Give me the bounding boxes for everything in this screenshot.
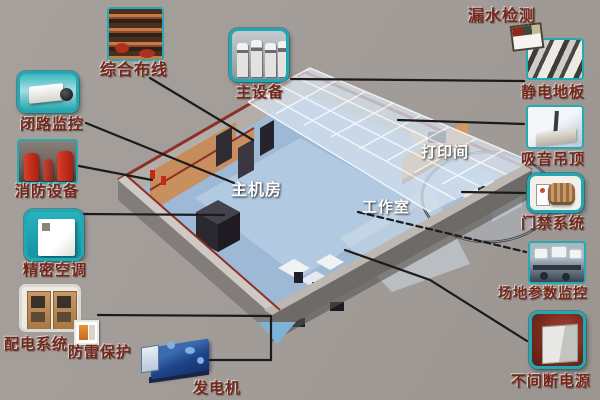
- ac-unit-icon: [38, 219, 75, 256]
- fire-extinguisher-icon: [57, 151, 73, 181]
- label-access-control: 门禁系统: [521, 215, 585, 232]
- main-equipment-icon: [229, 28, 289, 82]
- label-site-monitoring: 场地参数监控: [498, 286, 588, 303]
- operator-icon: [562, 273, 570, 281]
- integrated-cabling-icon: [107, 7, 164, 61]
- monitor-screen-icon: [552, 247, 566, 257]
- cable-bundle-icon: [115, 43, 129, 53]
- server-unit-icon: [251, 40, 262, 77]
- label-lightning-protection: 防雷保护: [68, 344, 132, 361]
- line-generator: [207, 316, 271, 360]
- camera-body: [29, 83, 63, 104]
- line-cctv: [86, 123, 234, 183]
- label-cctv-monitoring: 闭路监控: [20, 116, 84, 133]
- console-desk-icon: [533, 265, 581, 270]
- camera-lens-icon: [60, 88, 73, 101]
- server-unit-icon: [237, 43, 248, 77]
- ups-cabinet-icon: [542, 324, 578, 365]
- label-work-room: 工作室: [362, 196, 410, 217]
- monitor-screen-icon: [570, 250, 581, 258]
- label-generator: 发电机: [193, 380, 241, 397]
- server-unit-icon: [265, 43, 276, 77]
- monitor-screen-icon: [535, 249, 547, 258]
- fire-extinguisher-icon: [43, 159, 53, 181]
- generator-detail: [167, 341, 175, 349]
- lightning-protection-icon: [74, 320, 99, 345]
- acoustic-ceiling-icon: [526, 105, 584, 149]
- label-ups: 不间断电源: [511, 373, 591, 390]
- induction-coil-icon: [548, 183, 575, 205]
- precision-ac-icon: [24, 209, 84, 261]
- power-distribution-icon: [19, 284, 81, 332]
- generator-detail: [185, 347, 195, 354]
- machine-room-diagram: 综合布线 闭路监控 消防设备 精密空调 配电系统 防雷保护 发电机 主设备 漏水…: [0, 0, 600, 400]
- label-main-equipment: 主设备: [236, 84, 284, 101]
- line-acoustic-ceiling: [398, 120, 524, 124]
- line-power-distribution: [98, 315, 271, 316]
- server-unit-icon: [278, 41, 289, 77]
- cable-bundle-icon: [139, 49, 155, 58]
- ups-icon: [529, 311, 586, 369]
- generator-detail: [197, 357, 204, 364]
- label-antistatic-floor: 静电地板: [521, 84, 585, 101]
- line-precision-ac: [83, 214, 224, 215]
- surge-protector-icon: [79, 325, 88, 340]
- leak-detection-icon: [510, 22, 545, 52]
- fire-equipment-icon: [17, 139, 78, 184]
- line-access-control: [462, 192, 525, 193]
- access-control-icon: [527, 173, 584, 213]
- fire-extinguisher-icon: [24, 153, 39, 181]
- label-main-machine-room: 主机房: [231, 176, 282, 200]
- leak-sensor-icon: [512, 24, 541, 36]
- ceiling-panel-icon: [536, 128, 576, 147]
- generator-panel: [141, 345, 159, 374]
- line-fire: [79, 166, 152, 180]
- label-print-room: 打印间: [421, 141, 469, 162]
- cctv-camera-icon: [17, 71, 79, 113]
- label-precision-ac: 精密空调: [23, 262, 87, 279]
- label-power-distribution: 配电系统: [4, 336, 68, 353]
- line-site-monitoring: [358, 212, 526, 252]
- distribution-cabinet-icon: [27, 291, 51, 330]
- operator-icon: [540, 272, 548, 280]
- label-integrated-cabling: 综合布线: [100, 61, 168, 78]
- surge-protector-icon: [89, 325, 95, 340]
- generator-icon: [139, 335, 213, 383]
- site-monitoring-icon: [528, 241, 586, 284]
- line-main-equipment-static-floor: [291, 79, 524, 81]
- label-fire-equipment: 消防设备: [15, 183, 79, 200]
- label-leak-detection: 漏水检测: [468, 7, 536, 24]
- label-acoustic-ceiling: 吸音吊顶: [521, 151, 585, 168]
